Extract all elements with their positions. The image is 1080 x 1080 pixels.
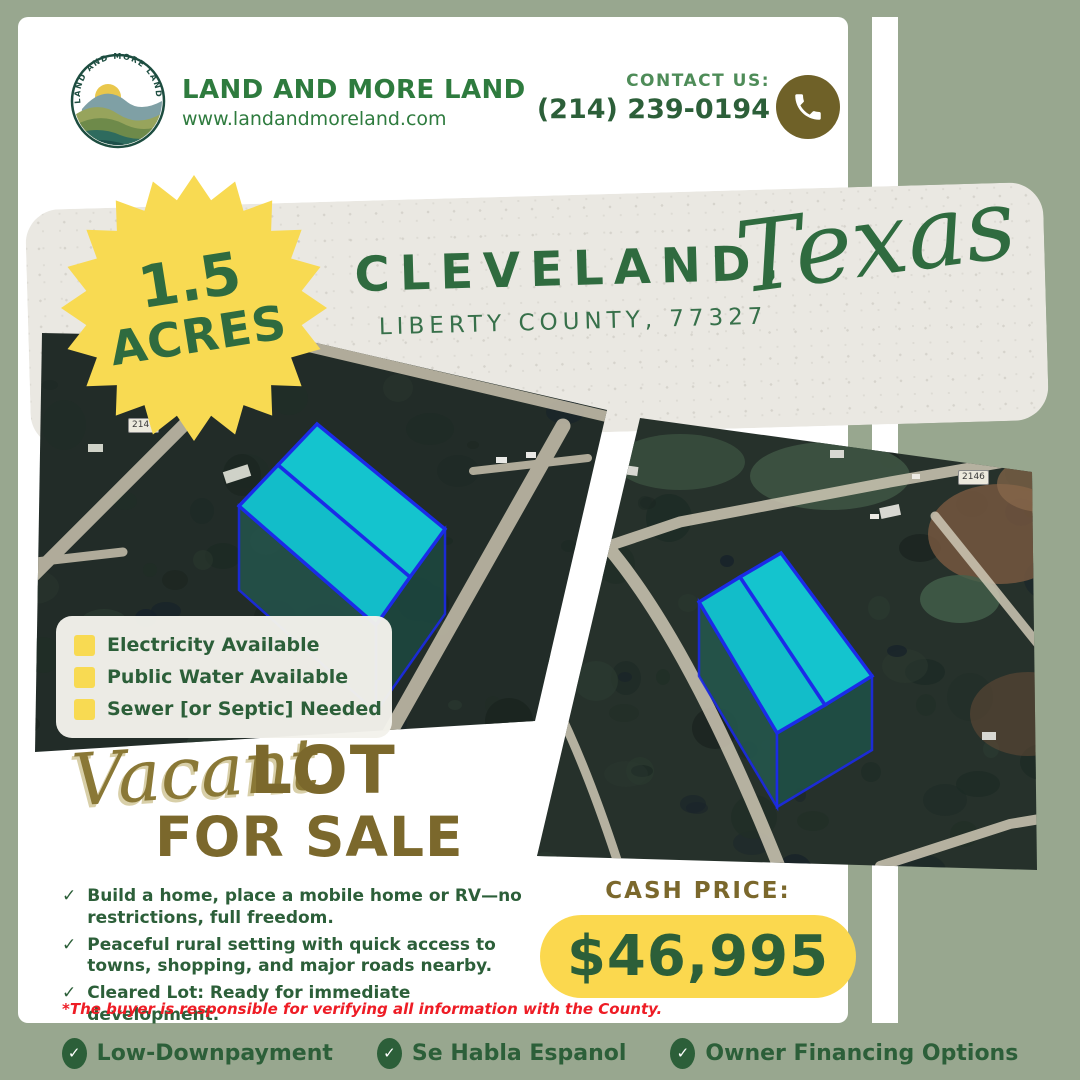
yellow-square-icon	[74, 699, 95, 720]
price-label: CASH PRICE:	[540, 878, 856, 904]
feature-label: Sewer [or Septic] Needed	[107, 698, 382, 720]
lot-word: LOT	[250, 738, 397, 804]
check-icon: ✓	[62, 886, 76, 930]
sale-headline: Vacant LOT FOR SALE	[60, 736, 490, 886]
phone-icon	[791, 90, 825, 124]
state-script: Texas	[731, 174, 1021, 308]
acreage-text: 1.5 ACRES	[38, 152, 349, 463]
check-circle-icon: ✓	[670, 1038, 695, 1069]
check-circle-icon: ✓	[377, 1038, 402, 1069]
footer-label: Se Habla Espanol	[412, 1041, 627, 1066]
brand-website: www.landandmoreland.com	[182, 108, 526, 130]
list-item: Public Water Available	[74, 661, 374, 693]
road-number-label: 2146	[958, 470, 989, 485]
flyer-canvas: LAND AND MORE LAND LAND AND MORE LAND ww…	[0, 0, 1080, 1080]
acreage-badge: 1.5 ACRES	[58, 172, 330, 444]
phone-badge	[776, 75, 840, 139]
list-item: Electricity Available	[74, 629, 374, 661]
brand-logo: LAND AND MORE LAND	[68, 51, 168, 151]
feature-label: Electricity Available	[107, 634, 320, 656]
header: LAND AND MORE LAND LAND AND MORE LAND ww…	[40, 45, 840, 170]
benefit-text: Peaceful rural setting with quick access…	[87, 935, 534, 979]
check-icon: ✓	[62, 935, 76, 979]
landscape-logo-icon: LAND AND MORE LAND	[68, 51, 168, 151]
list-item: ✓ Peaceful rural setting with quick acce…	[62, 935, 534, 979]
benefit-text: Build a home, place a mobile home or RV—…	[87, 886, 534, 930]
price-amount: $46,995	[540, 915, 856, 998]
brand-block: LAND AND MORE LAND www.landandmoreland.c…	[182, 75, 526, 130]
county-zip: LIBERTY COUNTY, 77327	[338, 302, 809, 341]
check-circle-icon: ✓	[62, 1038, 87, 1069]
price-block: CASH PRICE: $46,995	[540, 878, 856, 998]
brand-name: LAND AND MORE LAND	[182, 75, 526, 105]
footer-label: Owner Financing Options	[705, 1041, 1018, 1066]
contact-block: CONTACT US: (214) 239-0194	[510, 71, 770, 125]
for-sale-word: FOR SALE	[155, 810, 464, 865]
acreage-unit: ACRES	[106, 295, 291, 379]
list-item: Sewer [or Septic] Needed	[74, 693, 374, 725]
contact-label: CONTACT US:	[510, 71, 770, 91]
footer-item: ✓ Owner Financing Options	[670, 1038, 1018, 1069]
yellow-square-icon	[74, 667, 95, 688]
yellow-square-icon	[74, 635, 95, 656]
disclaimer-text: *The buyer is responsible for verifying …	[62, 1000, 662, 1018]
utilities-list: Electricity Available Public Water Avail…	[56, 616, 392, 738]
list-item: ✓ Build a home, place a mobile home or R…	[62, 886, 534, 930]
footer-bar: ✓ Low-Downpayment ✓ Se Habla Espanol ✓ O…	[0, 1026, 1080, 1080]
footer-label: Low-Downpayment	[97, 1041, 333, 1066]
footer-item: ✓ Se Habla Espanol	[377, 1038, 627, 1069]
footer-item: ✓ Low-Downpayment	[62, 1038, 333, 1069]
contact-phone-number: (214) 239-0194	[510, 94, 770, 125]
feature-label: Public Water Available	[107, 666, 348, 688]
